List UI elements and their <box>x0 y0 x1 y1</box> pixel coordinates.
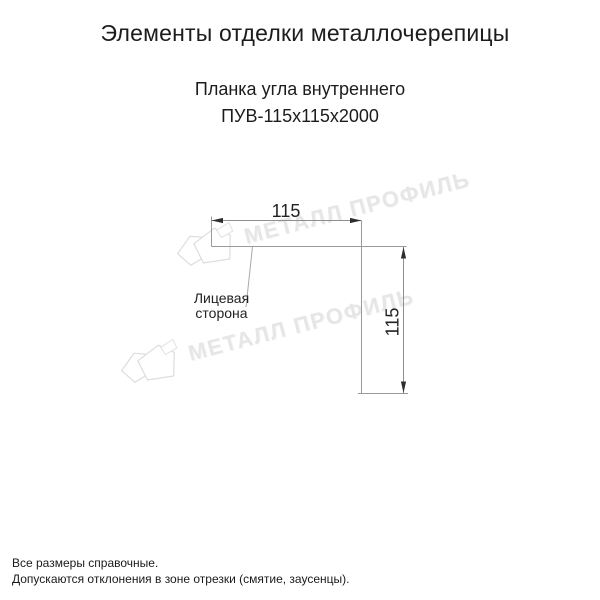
face-side-label-line1: Лицевая <box>181 291 262 306</box>
footer-note-2: Допускаются отклонения в зоне отрезки (с… <box>12 571 349 587</box>
footer-notes: Все размеры справочные. Допускаются откл… <box>12 555 349 587</box>
dimension-width-label: 115 <box>266 202 306 220</box>
profile-drawing <box>0 0 600 600</box>
footer-note-1: Все размеры справочные. <box>12 555 349 571</box>
arrowhead-left-icon <box>212 218 224 223</box>
dimension-height-label: 115 <box>384 302 402 343</box>
arrowhead-down-icon <box>401 382 406 394</box>
face-side-label-line2: сторона <box>181 306 262 321</box>
face-side-label: Лицевая сторона <box>181 291 262 321</box>
catalog-page: Элементы отделки металлочерепицы Планка … <box>0 0 600 600</box>
arrowhead-up-icon <box>401 247 406 259</box>
arrowhead-right-icon <box>350 218 362 223</box>
